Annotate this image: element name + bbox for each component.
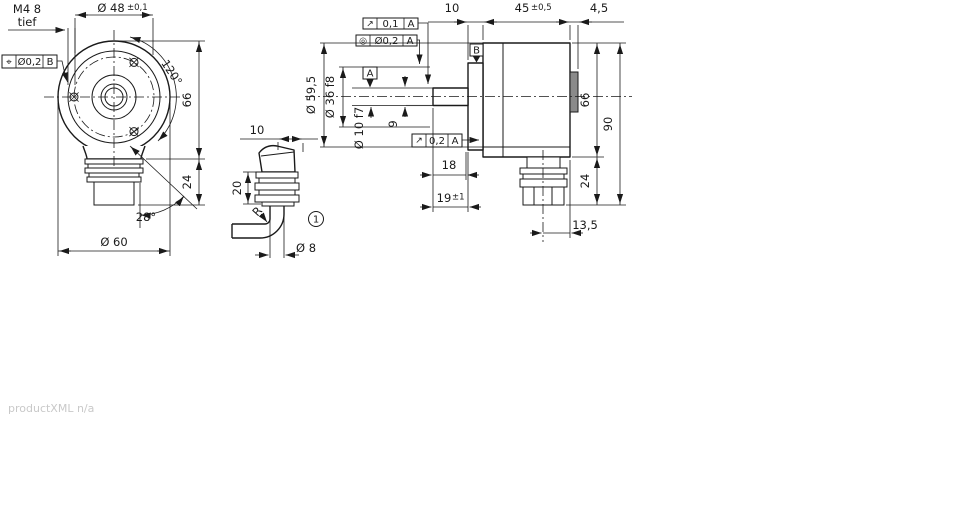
runout-datum-ref: A <box>408 19 415 30</box>
dim-bolt-circle-value: Ø 48 <box>97 1 124 15</box>
position-datum-ref: B <box>47 57 54 68</box>
dim-shaft-diameter-value: Ø 10 f7 <box>352 107 366 149</box>
dim-gland-tip-width-value: 10 <box>250 123 265 137</box>
dim-seal-length-value: 4,5 <box>590 1 608 15</box>
datum-a-flag: A <box>363 67 377 88</box>
callout-1-number: 1 <box>313 215 319 226</box>
dim-connector-offset-value: 13,5 <box>572 218 598 232</box>
dim-side-connector-height-value: 24 <box>578 174 592 189</box>
dim-body-length-tol: ±0,5 <box>531 3 552 13</box>
position-tolerance-value: Ø0,2 <box>18 56 42 68</box>
dim-total-height-value: 90 <box>601 117 615 132</box>
watermark-text: productXML n/a <box>8 402 94 415</box>
runout-symbol: ↗ <box>366 20 374 30</box>
datum-b-flag: B <box>470 44 483 63</box>
dim-cable-diameter: Ø 8 <box>255 208 316 258</box>
callout-1: 1 <box>309 212 324 227</box>
runout-tolerance-value: 0,1 <box>383 19 399 30</box>
dim-side-body-height-value: 66 <box>578 93 592 108</box>
dim-cable-diameter-value: Ø 8 <box>296 241 316 255</box>
dim-shaft-length2-value: 19 <box>437 191 452 205</box>
concentricity-symbol: ◎ <box>359 37 367 47</box>
concentricity-tolerance-frame: ◎ Ø0,2 A <box>356 35 420 64</box>
datum-a-label: A <box>367 69 374 80</box>
dim-spigot-diameter-value: Ø 36 f8 <box>323 76 337 118</box>
dim-shaft-flat: 9 <box>386 76 405 128</box>
dim-shaft-length-value: 18 <box>442 158 457 172</box>
dim-body-length-value: 45 <box>515 1 530 15</box>
cable-gland <box>255 172 299 206</box>
dim-shaft-length2-tol: ±1 <box>452 193 465 203</box>
dim-outer-diameter-value: Ø 60 <box>100 235 127 249</box>
gland-tip <box>259 146 295 172</box>
cable-exit-view: 10 20 R 1 Ø 8 <box>230 123 324 258</box>
concentricity-tolerance-value: Ø0,2 <box>375 35 399 47</box>
technical-drawing-page: M4 8 tief Ø 48 ±0,1 ⌖ Ø0,2 B <box>0 0 970 520</box>
side-view: ↗ 0,1 A ◎ Ø0,2 A B A <box>304 1 632 242</box>
encoder-dimension-drawing: M4 8 tief Ø 48 ±0,1 ⌖ Ø0,2 B <box>0 0 970 520</box>
datum-b-label: B <box>473 46 480 57</box>
position-symbol: ⌖ <box>6 57 12 68</box>
dim-flange-length-value: 10 <box>445 1 460 15</box>
front-view: M4 8 tief Ø 48 ±0,1 ⌖ Ø0,2 B <box>2 1 205 256</box>
concentricity-datum-ref: A <box>407 36 414 47</box>
face-runout-tolerance-value: 0,2 <box>429 136 445 147</box>
dim-bolt-circle-tol: ±0,1 <box>127 3 148 13</box>
seal-clamp <box>570 72 578 112</box>
dim-front-height-value: 66 <box>180 93 194 108</box>
dim-front-connector-height-value: 24 <box>180 175 194 190</box>
body-outline <box>483 43 570 157</box>
thread-note-line2: tief <box>18 15 38 29</box>
dim-front-connector-height: 24 <box>138 159 205 205</box>
face-runout-symbol: ↗ <box>415 136 423 146</box>
side-connector <box>520 157 567 205</box>
mounting-flange <box>468 63 483 150</box>
thread-note-line1: M4 8 <box>13 2 41 16</box>
dim-cable-angle-value: 28° <box>136 210 156 224</box>
face-runout-datum-ref: A <box>452 136 459 147</box>
dim-side-heights: 66 24 90 <box>566 43 626 205</box>
dim-gland-length-value: 20 <box>230 181 244 196</box>
position-tolerance-frame: ⌖ Ø0,2 B <box>2 55 68 82</box>
dim-body-diameter-value: Ø 59,5 <box>304 76 318 114</box>
dim-shaft-flat-value: 9 <box>386 120 400 127</box>
